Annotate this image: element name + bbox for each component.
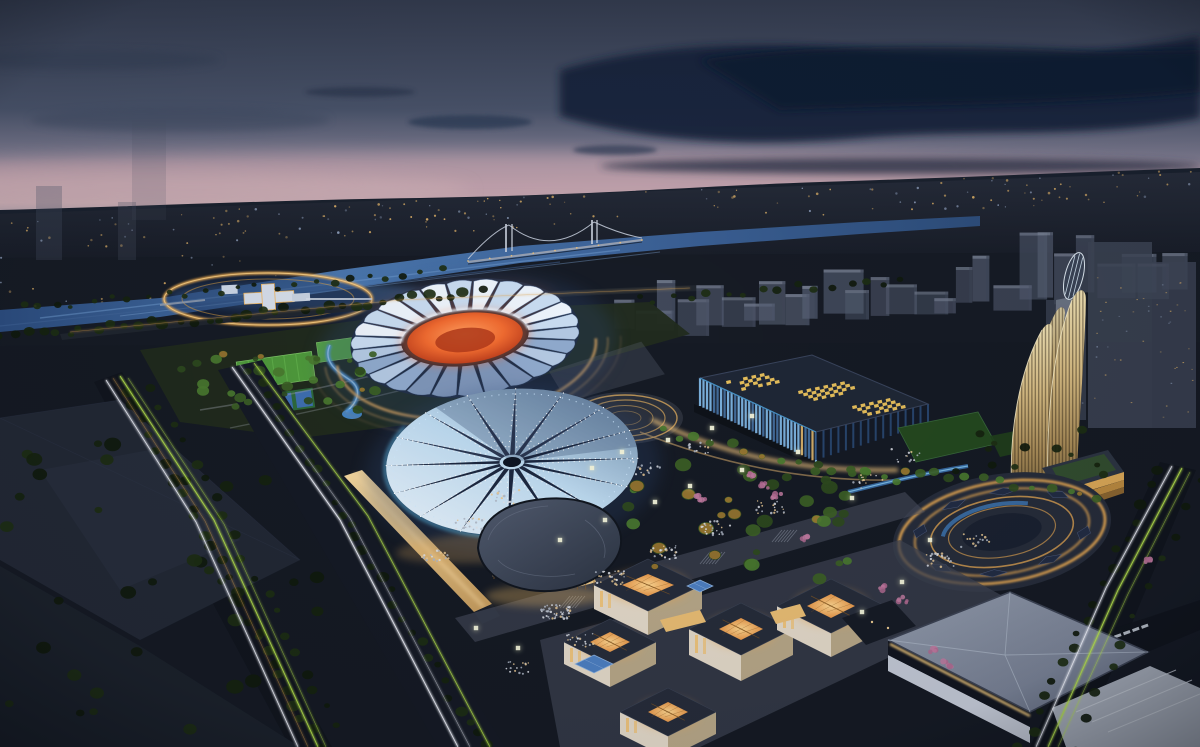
vignette (0, 0, 1200, 747)
rendering-canvas (0, 0, 1200, 747)
architectural-rendering (0, 0, 1200, 747)
